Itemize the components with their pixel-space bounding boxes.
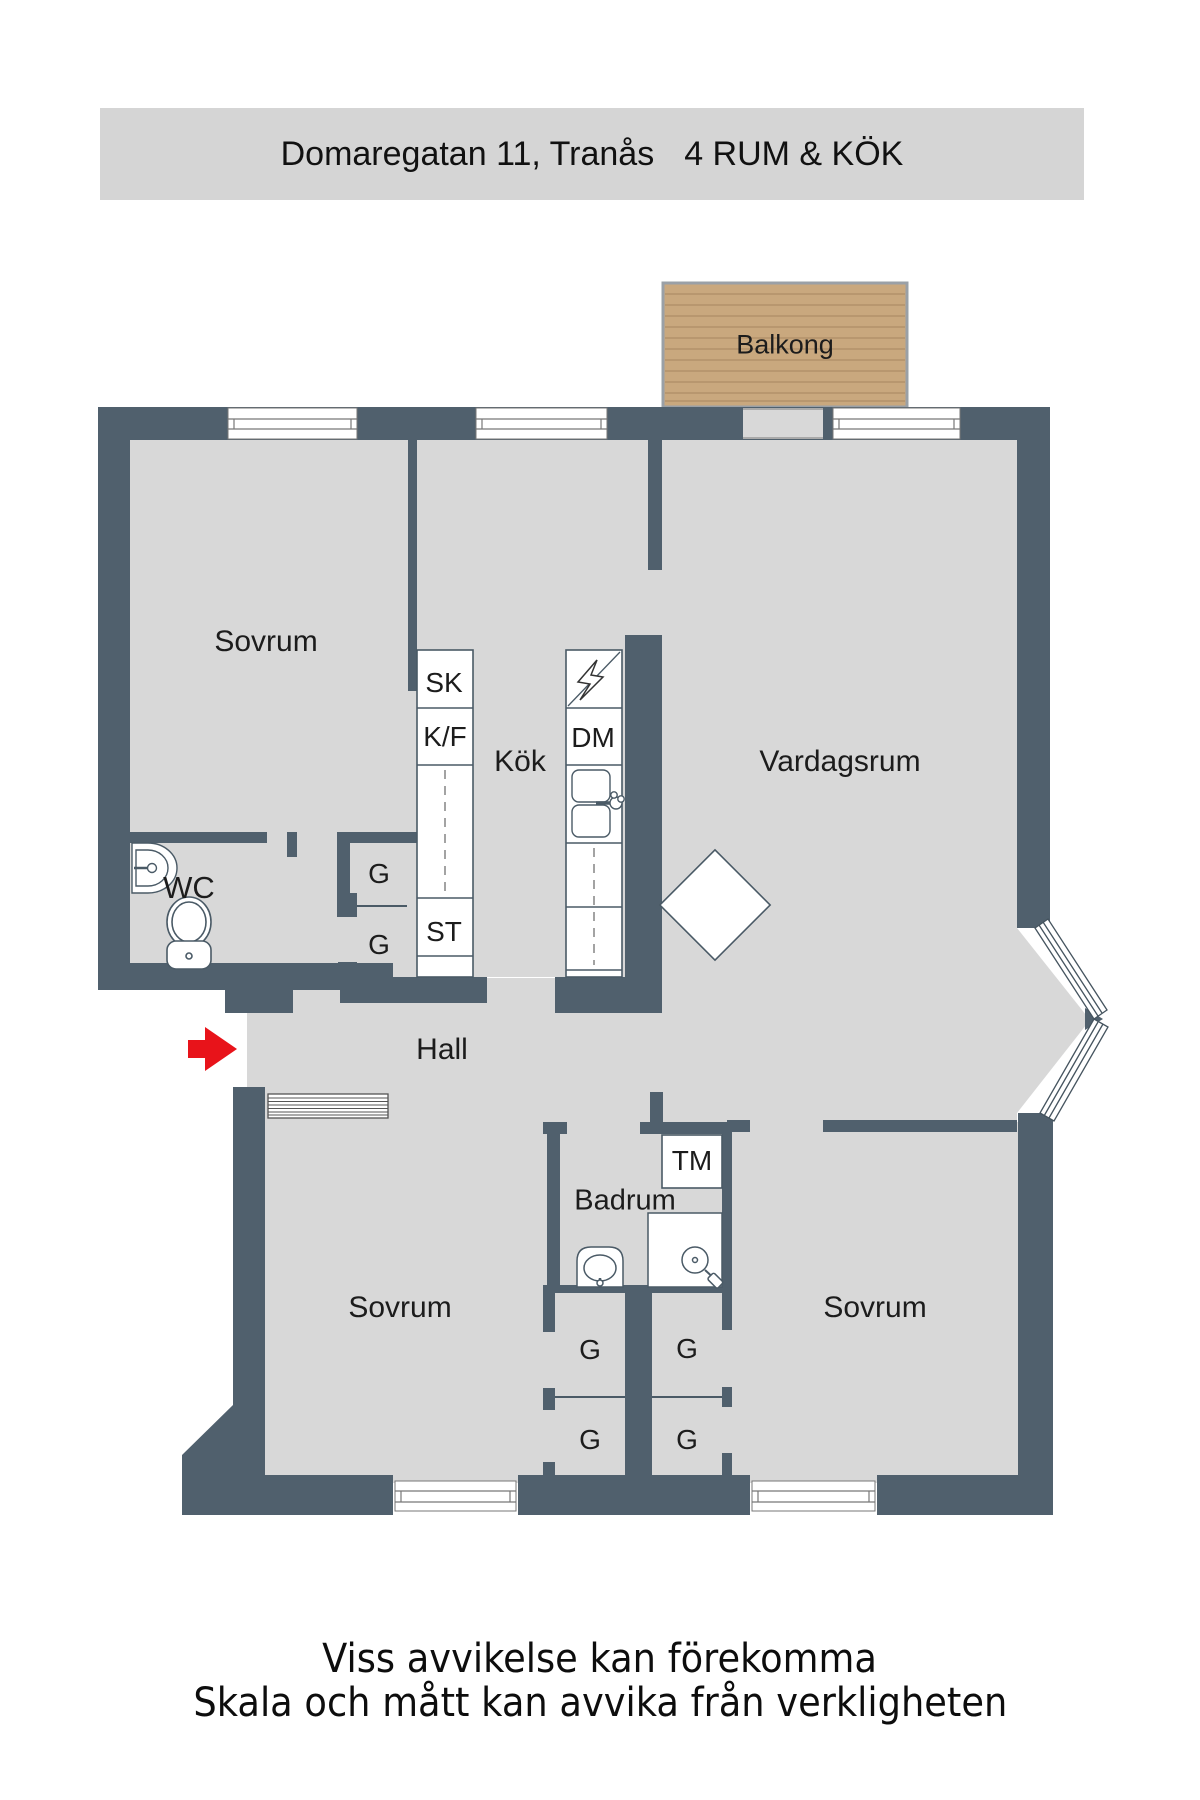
radiator-icon: [268, 1094, 388, 1118]
fixture-label-wardrobe-6: G: [676, 1424, 698, 1456]
fixture-label-kf: K/F: [423, 721, 467, 753]
room-label-bedroom-sw: Sovrum: [348, 1291, 451, 1325]
fixture-label-wardrobe-3: G: [579, 1334, 601, 1366]
fixture-label-wardrobe-4: G: [579, 1424, 601, 1456]
balcony-door: [743, 408, 823, 439]
room-label-kitchen: Kök: [494, 745, 546, 779]
floor-plan-page: Domaregatan 11, Tranås 4 RUM & KÖK: [0, 0, 1200, 1800]
room-label-wc: WC: [163, 870, 215, 906]
room-label-bedroom-se: Sovrum: [823, 1291, 926, 1325]
toilet-icon: [167, 897, 211, 969]
room-label-hall: Hall: [416, 1033, 468, 1067]
room-label-living-room: Vardagsrum: [759, 745, 920, 779]
fixture-label-sk: SK: [425, 667, 462, 699]
fixture-label-dm: DM: [571, 722, 615, 754]
room-label-bedroom-nw: Sovrum: [214, 625, 317, 659]
fixture-label-st: ST: [426, 916, 462, 948]
disclaimer-line-2: Skala och mått kan avvika från verklighe…: [0, 1680, 1200, 1726]
bathroom-sink-icon: [577, 1247, 623, 1288]
fixture-label-wardrobe-2: G: [368, 929, 390, 961]
fixture-label-wardrobe-1: G: [368, 858, 390, 890]
room-label-balcony: Balkong: [736, 330, 834, 361]
fixture-label-tm: TM: [672, 1145, 712, 1177]
window-icon: [228, 408, 960, 439]
shower-icon: [648, 1213, 723, 1289]
disclaimer-line-1: Viss avvikelse kan förekomma: [0, 1636, 1200, 1682]
fixture-label-wardrobe-5: G: [676, 1333, 698, 1365]
room-label-bathroom: Badrum: [574, 1185, 676, 1218]
